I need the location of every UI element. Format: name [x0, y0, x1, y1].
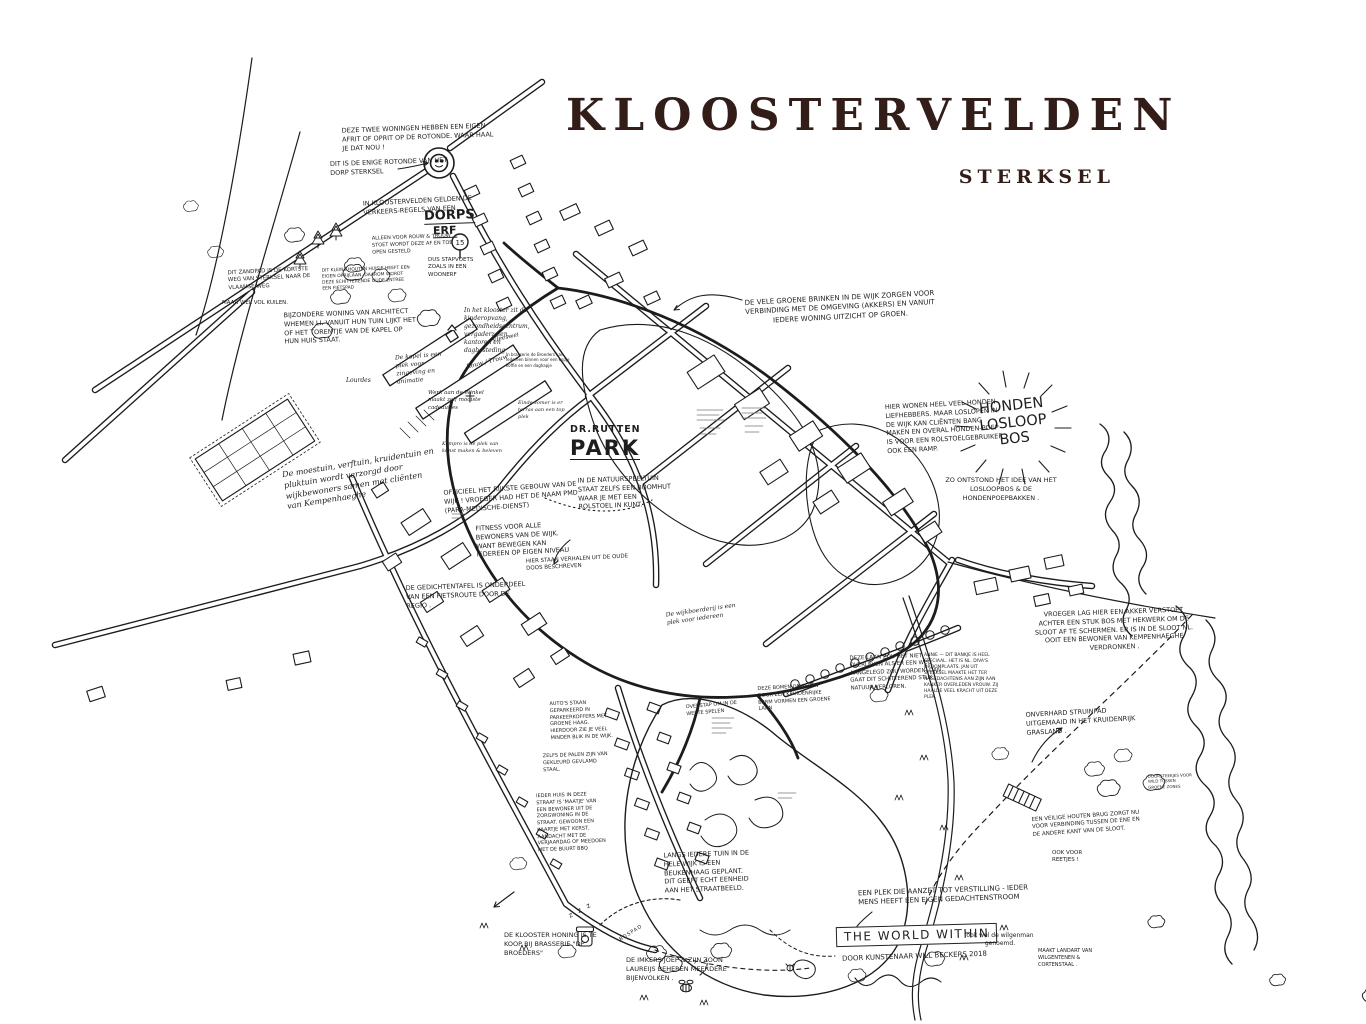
note-annie-bankje: ANNIE — DIT BANKJE IS HEEL SPECIAAL. HET…: [924, 653, 1000, 702]
note-kempro: Kempro is dé plek van kunst maken & bele…: [442, 441, 506, 455]
note-natuurspeeltuin: IN DE NATUURSPEELTUIN STAAT ZELFS EEN BO…: [577, 473, 672, 511]
dorpserf-label-dorps: DORPS: [424, 207, 475, 224]
park-label: PARK: [570, 436, 640, 460]
note-kuilen: MAAR WEL VOL KUILEN.: [222, 300, 292, 307]
bos-edges: [1100, 424, 1366, 1024]
map-title: KLOOSTERVELDEN: [566, 90, 1126, 141]
note-bomen-berm: DEZE BOMEN OMGEVEN DOOR EEN KRUIDENRIJKE…: [757, 682, 832, 713]
note-terras: Einde zomer is er terras aan een top ple…: [518, 400, 570, 420]
note-landart: MAAKT LANDART VAN WILGENTENEN & CORTENST…: [1038, 948, 1114, 968]
note-brasserie: In brasserie de Broeders kan iedereen bi…: [506, 352, 572, 368]
hand-drawn-map-kloostervelden: 15: [0, 0, 1366, 1024]
bridge: [1003, 784, 1041, 811]
pond-park: [625, 699, 941, 997]
note-houten-huisje: DIT KLEINE HOUTEN HUISJE HEEFT EEN EIGEN…: [322, 265, 415, 292]
note-parkeerkoffers: AUTO'S STAAN GEPARKEERD IN PARKEERKOFFER…: [549, 699, 616, 742]
note-maatje-straat: IEDER HUIS IN DEZE STRAAT IS 'MAATJE' VA…: [536, 791, 608, 854]
note-beukenhaag: LANGS IEDERE TUIN IN DE HELE WIJK IS EEN…: [663, 848, 752, 895]
note-rouw-trouw-stoet: ALLEEN VOOR ROUW & TROUW STOET WORDT DEZ…: [372, 232, 465, 255]
note-reetjes: OOK VOOR REETJES !: [1052, 850, 1102, 865]
map-subtitle: STERKSEL: [950, 166, 1115, 188]
note-two-homes: DEZE TWEE WONINGEN HEBBEN EEN EIGEN AFRI…: [342, 121, 495, 153]
note-imkers: DE IMKERS JOEP & ZIJN ZOON LAUREIJS BEHE…: [626, 956, 736, 982]
note-klooster-functies: In het klooster zit de kinderopvang, gez…: [464, 307, 534, 356]
note-zandpad: DIT ZANDPAD IS DE KORTSTE WEG VAN STERKS…: [227, 266, 316, 293]
note-kapel: De kapel is een plek voor zingeving en a…: [395, 350, 456, 387]
note-werk-aan-de-winkel: Werk aan de Winkel maakt zelf mooiste ca…: [428, 390, 490, 412]
park-label-prefix: DR.RUTTEN: [570, 424, 641, 435]
note-wild-doorsteekjes: DOORSTEEKJES VOOR WILD TUSSEN GROENE ZON…: [1148, 772, 1195, 790]
note-architect-woning: BIJZONDERE WONING VAN ARCHITECT WHEMEN L…: [283, 307, 418, 347]
note-klooster-honing: DE KLOOSTER HONING IS TE KOOP BIJ BRASSE…: [504, 931, 616, 957]
note-fitness: FITNESS VOOR ALLE BEWONERS VAN DE WIJK. …: [475, 519, 575, 559]
note-stapvoets: DUS STAPVOETS ZOALS IN EEN WOONERF: [428, 257, 486, 279]
beetle-icon: [786, 964, 794, 971]
note-hondenliefhebbers: HIER WONEN HEEL VEEL HONDEN LIEFHEBBERS.…: [885, 397, 1008, 456]
note-palen: ZELFS DE PALEN ZIJN VAN GEKLEURD GEVLAMD…: [543, 751, 614, 774]
note-gedichtentafel: DE GEDICHTENTAFEL IS ONDERDEEL VAN EEN F…: [406, 580, 527, 610]
note-losloopbos-idee: ZO ONTSTOND HET IDEE VAN HET LOSLOOPBOS …: [936, 476, 1066, 502]
note-lourdes: Lourdes: [346, 377, 396, 385]
note-akker-sloot: VROEGER LAG HIER EEN AKKER VERSTOPT ACHT…: [1031, 605, 1196, 655]
note-wilgenman: ook wel de wilgenman genoemd.: [952, 932, 1048, 948]
